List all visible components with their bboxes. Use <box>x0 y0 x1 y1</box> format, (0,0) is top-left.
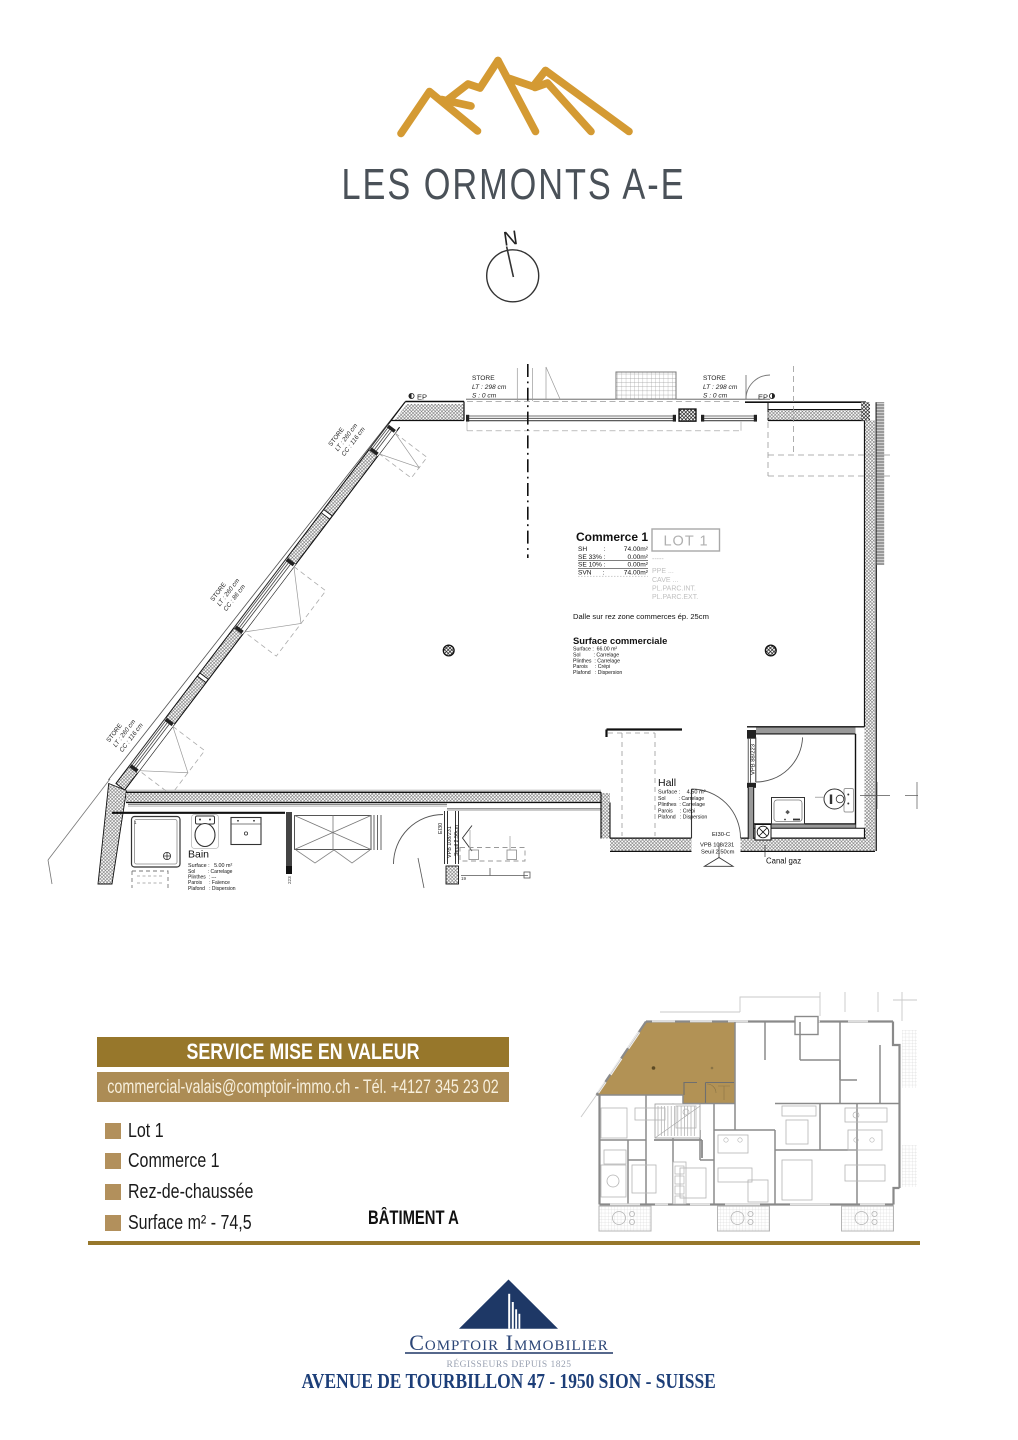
svg-text:Parois : Crépi: Parois : Crépi <box>658 808 695 814</box>
svg-text:Surface : 4.50 m²: Surface : 4.50 m² <box>658 790 706 796</box>
svg-text:STORE: STORE <box>703 375 726 382</box>
svg-text:Dalle sur rez zone commerces é: Dalle sur rez zone commerces ép. 25cm <box>573 612 709 621</box>
svg-text:N: N <box>502 227 519 251</box>
svg-text:Plafond : Dispersion: Plafond : Dispersion <box>188 886 236 892</box>
svg-text:LT : 298 cm: LT : 298 cm <box>472 384 507 391</box>
svg-text:Sol : Carrelage: Sol : Carrelage <box>658 796 704 802</box>
svg-text:Seuil 2.50cm: Seuil 2.50cm <box>701 850 735 856</box>
svg-text:223: 223 <box>287 876 292 884</box>
svg-text:EI30-C: EI30-C <box>712 832 730 838</box>
svg-text:-----: ----- <box>652 556 664 563</box>
svg-text:S : 0 cm: S : 0 cm <box>703 393 728 400</box>
svg-text:0.00m²: 0.00m² <box>627 554 648 561</box>
svg-text:EI30: EI30 <box>438 823 444 834</box>
svg-text:PL.PARC.EXT.: PL.PARC.EXT. <box>652 594 698 601</box>
svg-text:SVN :: SVN : <box>578 569 605 576</box>
svg-text:Plafond : Dispersion: Plafond : Dispersion <box>573 670 622 676</box>
svg-text:LT : 298 cm: LT : 298 cm <box>703 384 738 391</box>
svg-text:EP: EP <box>417 392 427 401</box>
svg-text:EP: EP <box>758 392 768 401</box>
svg-text:S : 0 cm: S : 0 cm <box>472 393 497 400</box>
svg-text:SE 10% :: SE 10% : <box>578 562 606 569</box>
svg-text:Seuil 2.50cm: Seuil 2.50cm <box>454 824 460 856</box>
svg-text:Plafond : Dispersion: Plafond : Dispersion <box>658 815 707 821</box>
svg-text:Plinthes : Carrelage: Plinthes : Carrelage <box>658 802 705 808</box>
svg-text:Canal gaz: Canal gaz <box>766 857 801 866</box>
svg-text:Commerce 1: Commerce 1 <box>576 530 648 544</box>
svg-text:SH :: SH : <box>578 546 606 553</box>
svg-text:STORE: STORE <box>472 375 495 382</box>
svg-text:LOT 1: LOT 1 <box>663 534 708 550</box>
svg-text:Bain: Bain <box>188 849 209 861</box>
svg-text:Surface commerciale: Surface commerciale <box>573 635 667 646</box>
svg-text:VPB 108/231: VPB 108/231 <box>700 843 734 849</box>
svg-text:VPB 108/231: VPB 108/231 <box>447 826 453 858</box>
svg-text:CAVE ...: CAVE ... <box>652 577 678 584</box>
svg-text:74.00m²: 74.00m² <box>624 546 649 553</box>
svg-text:PL.PARC.INT.: PL.PARC.INT. <box>652 586 696 593</box>
svg-text:PPE ...: PPE ... <box>652 568 674 575</box>
svg-text:19: 19 <box>461 876 467 881</box>
svg-text:74.00m²: 74.00m² <box>624 569 649 576</box>
svg-text:0.00m²: 0.00m² <box>627 562 648 569</box>
svg-text:Hall: Hall <box>658 777 676 789</box>
svg-text:SE 33% :: SE 33% : <box>578 554 606 561</box>
